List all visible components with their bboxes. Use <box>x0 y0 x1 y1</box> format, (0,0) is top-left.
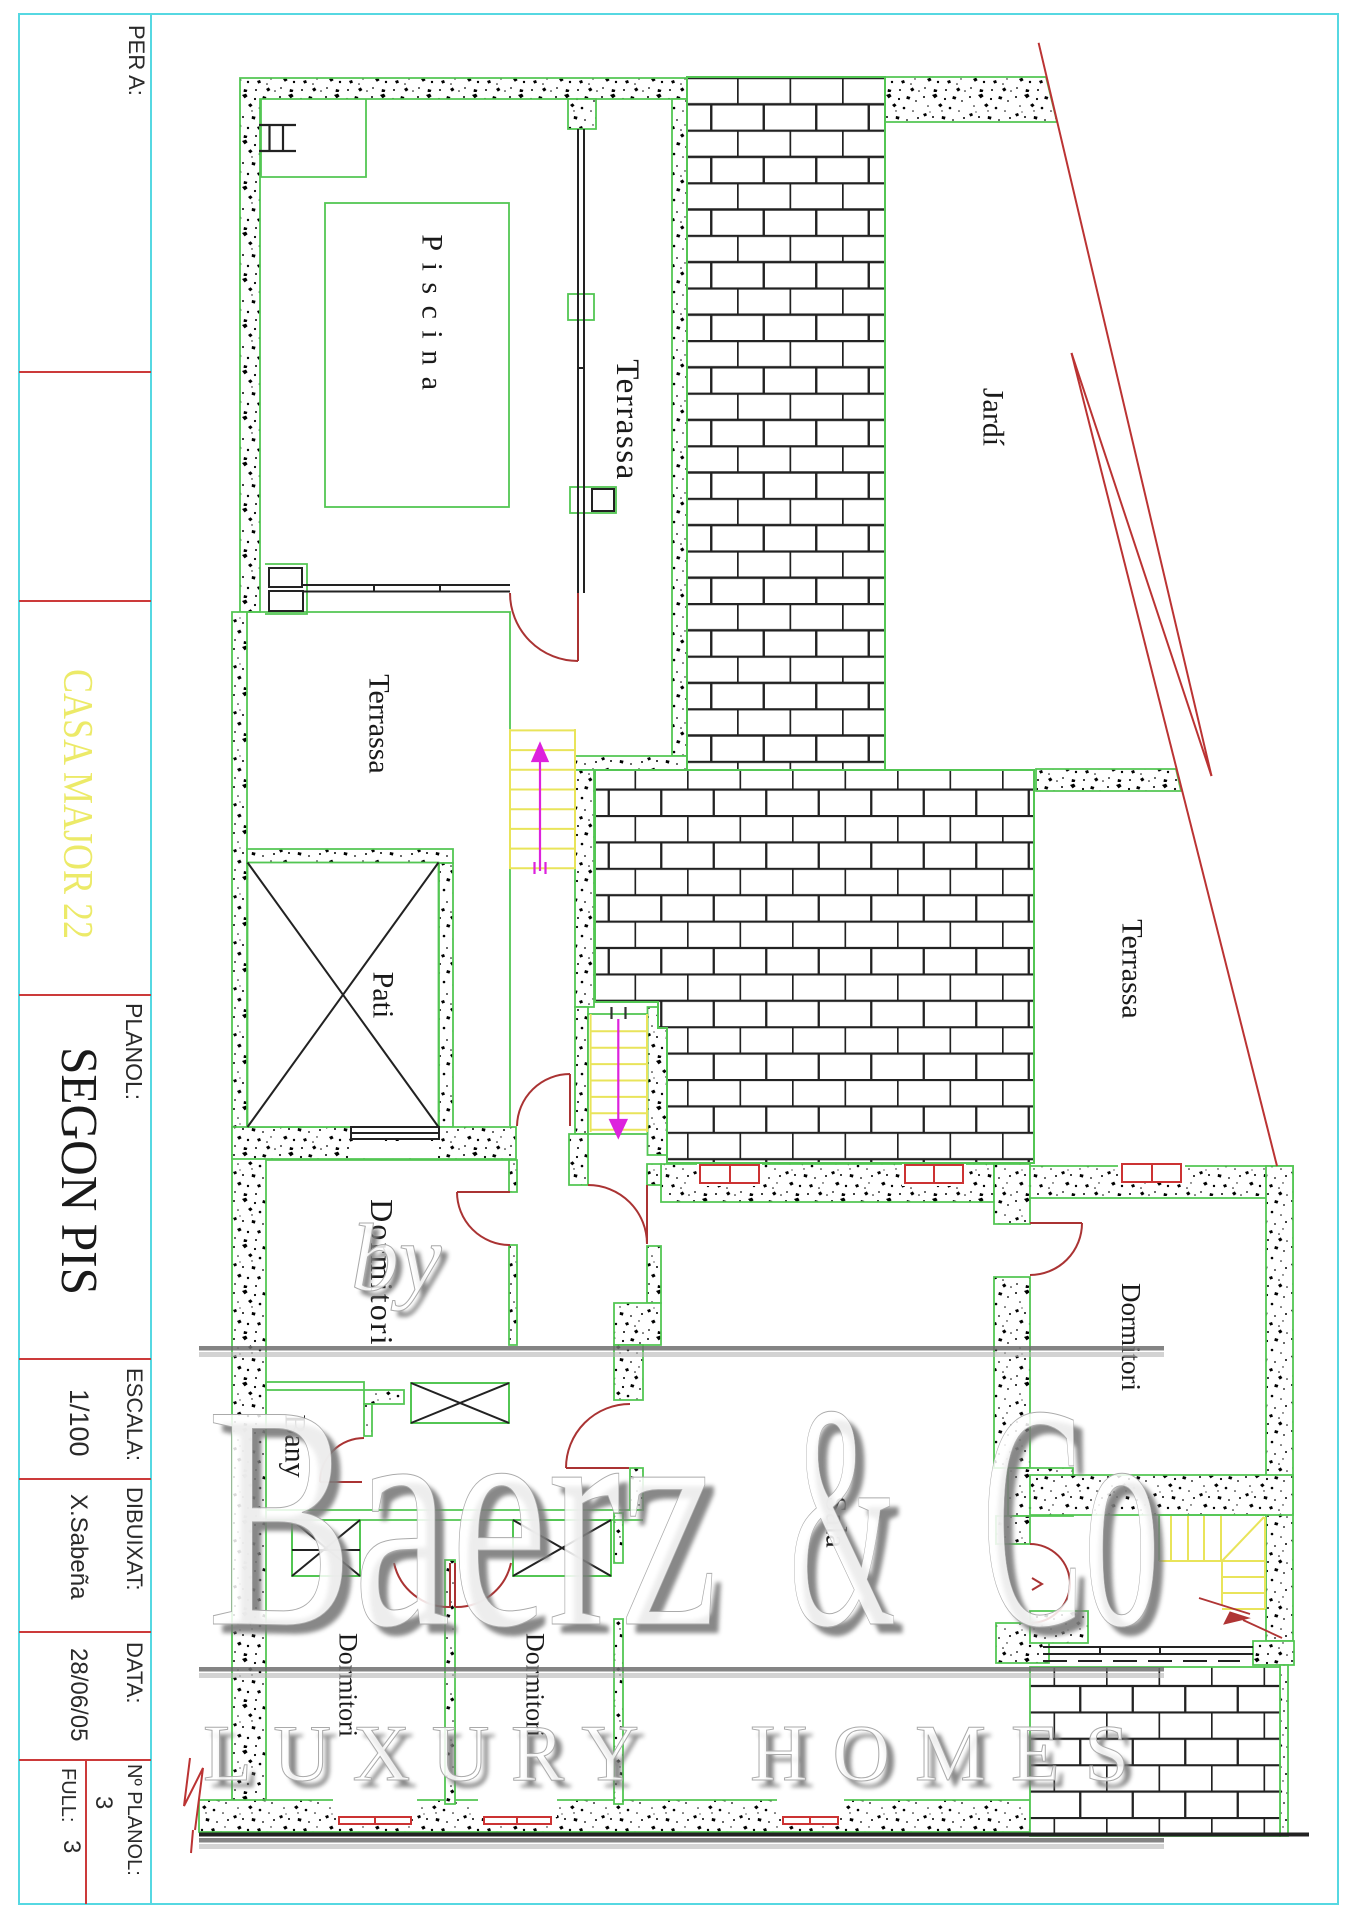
svg-text:&: & <box>789 1340 896 1694</box>
svg-text:Terrassa: Terrassa <box>363 674 396 774</box>
svg-text:Co: Co <box>982 1340 1160 1694</box>
svg-text:Nº PLANOL:: Nº PLANOL: <box>123 1764 145 1876</box>
svg-text:FULL:: FULL: <box>57 1768 79 1822</box>
svg-text:Baerz: Baerz <box>207 1340 718 1694</box>
svg-text:by: by <box>351 1204 442 1311</box>
svg-text:1/100: 1/100 <box>64 1389 94 1457</box>
svg-text:PER A:: PER A: <box>124 25 149 96</box>
svg-text:Terrassa: Terrassa <box>1116 919 1149 1019</box>
svg-text:DIBUIXAT:: DIBUIXAT: <box>122 1487 147 1591</box>
svg-text:Piscina: Piscina <box>416 234 449 401</box>
svg-text:DATA:: DATA: <box>122 1642 147 1704</box>
svg-text:28/06/05: 28/06/05 <box>65 1648 92 1741</box>
svg-text:Terrassa: Terrassa <box>609 359 645 480</box>
svg-text:X.Sabeña: X.Sabeña <box>65 1494 92 1600</box>
svg-text:PLANOL:: PLANOL: <box>121 1003 147 1100</box>
svg-text:Pati: Pati <box>367 972 400 1019</box>
svg-text:SEGON PIS: SEGON PIS <box>50 1047 107 1295</box>
svg-text:3: 3 <box>90 1796 117 1809</box>
svg-text:CASA MAJOR 22: CASA MAJOR 22 <box>54 669 100 939</box>
svg-text:ESCALA:: ESCALA: <box>122 1368 147 1461</box>
svg-text:3: 3 <box>58 1840 85 1853</box>
svg-text:Jardí: Jardí <box>977 388 1010 447</box>
